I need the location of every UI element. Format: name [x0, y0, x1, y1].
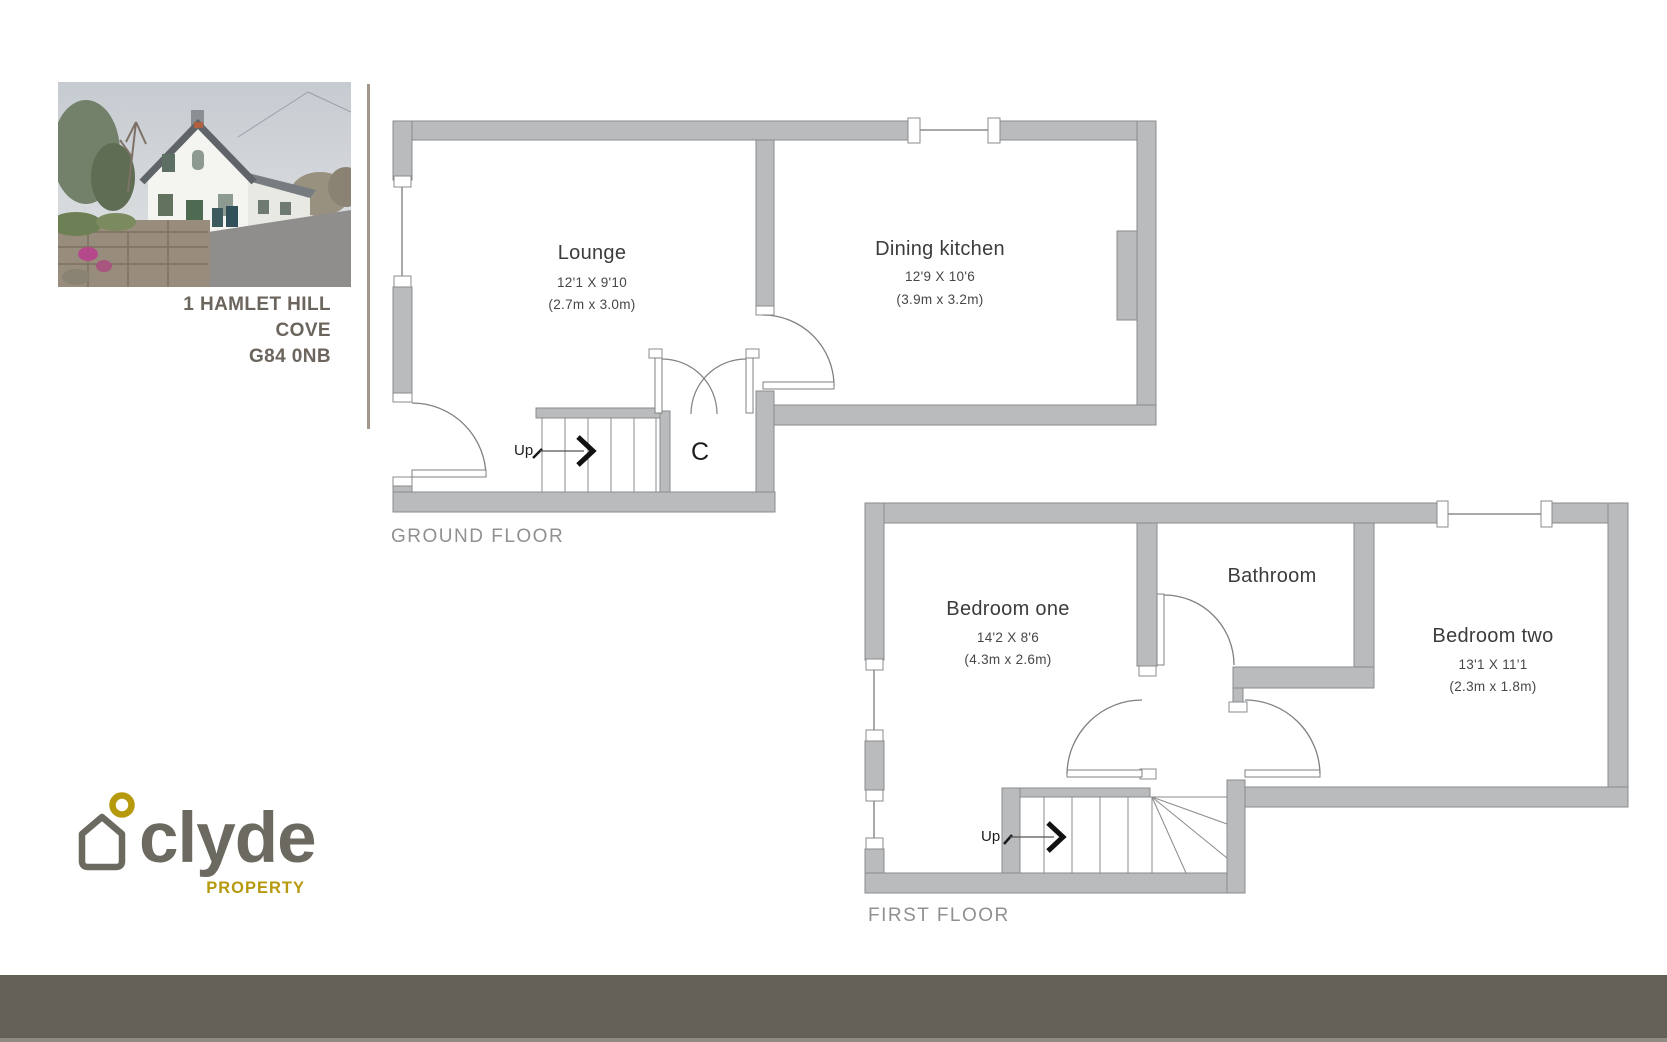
stair-header-wall-first	[1002, 788, 1150, 797]
room-name: Bedroom one	[946, 598, 1069, 621]
closet-door-arc-left	[662, 359, 717, 414]
footer-bar	[0, 975, 1667, 1038]
room-dims-metric: (2.3m x 1.8m)	[1432, 679, 1553, 694]
chimney-breast	[1117, 231, 1137, 320]
room-dims-imperial: 13'1 X 11'1	[1432, 657, 1553, 672]
room-name: Bathroom	[1227, 565, 1316, 588]
bathroom-door-arc	[1164, 595, 1234, 665]
bedroom-two-door-leaf	[1245, 770, 1320, 777]
dining-kitchen-label: Dining kitchen 12'9 X 10'6 (3.9m x 3.2m)	[875, 238, 1005, 307]
stair-header-wall	[536, 408, 660, 418]
closet-door-leaf-left	[655, 358, 662, 413]
closet-door-arc-right	[691, 359, 746, 414]
bathroom-door-leaf	[1157, 594, 1164, 665]
ground-floor-title: GROUND FLOOR	[391, 526, 564, 548]
clyde-house-icon	[74, 788, 144, 874]
bedroom-one-door-arc	[1067, 700, 1142, 774]
clyde-logo-text: clyde	[139, 804, 316, 874]
dining-door-arc	[763, 315, 834, 386]
first-floor-stairs	[1004, 797, 1227, 873]
bedroom-two-door-arc	[1245, 700, 1320, 774]
room-dims-metric: (3.9m x 3.2m)	[875, 292, 1005, 307]
first-floor-up-label: Up	[981, 828, 1000, 845]
first-floor-walls	[865, 503, 1628, 893]
ground-floor-plan	[393, 118, 1156, 512]
house-outline	[82, 817, 122, 867]
ground-floor-up-label: Up	[514, 442, 533, 459]
closet-label: C	[691, 438, 709, 467]
room-name: Dining kitchen	[875, 238, 1005, 261]
bedroom-two-label: Bedroom two 13'1 X 11'1 (2.3m x 1.8m)	[1432, 625, 1553, 694]
room-dims-imperial: 12'9 X 10'6	[875, 269, 1005, 284]
ground-floor-stairs	[533, 418, 656, 492]
room-dims-metric: (2.7m x 3.0m)	[548, 297, 635, 312]
entrance-door-leaf	[412, 470, 486, 477]
clyde-logo-tagline: PROPERTY	[203, 879, 305, 898]
room-dims-metric: (4.3m x 2.6m)	[946, 652, 1069, 667]
gold-ring-icon	[113, 796, 132, 815]
lounge-label: Lounge 12'1 X 9'10 (2.7m x 3.0m)	[548, 242, 635, 312]
bedroom-one-label: Bedroom one 14'2 X 8'6 (4.3m x 2.6m)	[946, 598, 1069, 667]
first-floor-plan	[865, 501, 1628, 893]
entrance-door-arc	[412, 403, 486, 477]
closet-door-leaf-right	[746, 358, 753, 413]
bedroom-one-door-leaf	[1067, 770, 1142, 777]
room-name: Lounge	[548, 242, 635, 265]
footer-accent-strip	[0, 1038, 1667, 1042]
bathroom-label: Bathroom	[1227, 565, 1316, 588]
room-dims-imperial: 12'1 X 9'10	[548, 275, 635, 290]
room-dims-imperial: 14'2 X 8'6	[946, 630, 1069, 645]
room-name: Bedroom two	[1432, 625, 1553, 648]
dining-door-leaf	[763, 382, 834, 389]
first-floor-title: FIRST FLOOR	[868, 905, 1010, 927]
